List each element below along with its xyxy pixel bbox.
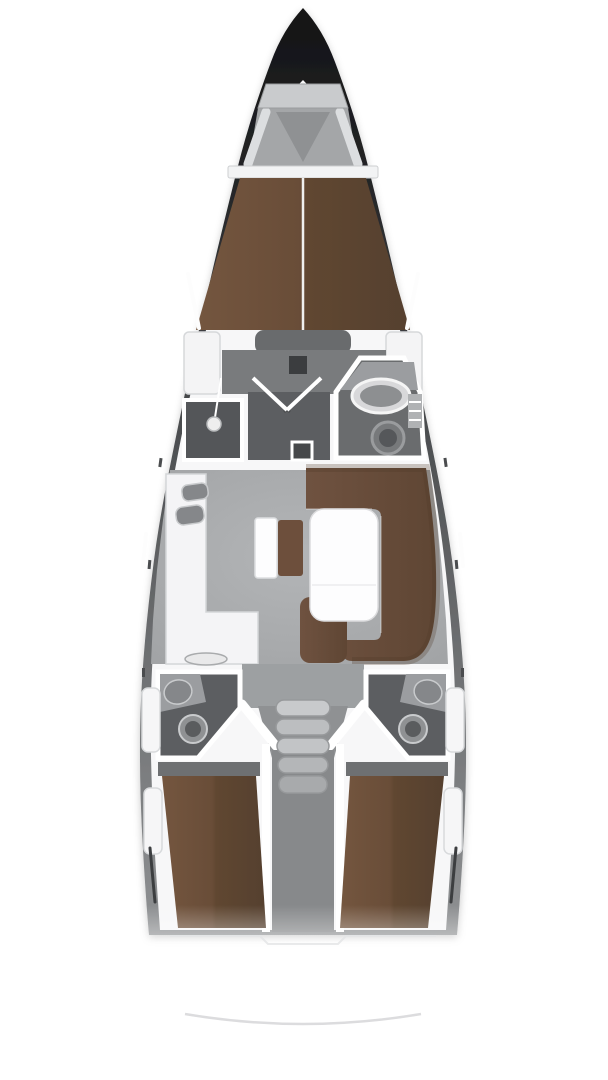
side-locker-port-1 <box>142 688 160 752</box>
mid-corridor <box>248 392 330 460</box>
hull-window-mid-port <box>143 534 146 566</box>
toilet-starboard-bowl <box>405 721 421 737</box>
floor-plan-canvas <box>0 0 608 1080</box>
head-compartment <box>336 358 424 458</box>
hull-window-mid-starboard <box>460 534 463 566</box>
stair-step-4 <box>278 757 328 773</box>
toilet-port-bowl <box>185 721 201 737</box>
nav-seat <box>278 520 303 576</box>
side-locker-starboard-2 <box>444 788 462 854</box>
chart-table <box>255 518 277 578</box>
stair-step-1 <box>276 700 330 716</box>
stanchion-tick <box>455 560 459 569</box>
stanchion-tick <box>461 668 464 677</box>
head-washbasin-bowl <box>360 385 402 407</box>
boat-floor-plan-diagram <box>0 0 608 1080</box>
stair-step-5 <box>279 776 327 793</box>
galley-stove <box>185 653 227 665</box>
anchor-locker <box>258 84 348 108</box>
side-locker-port-2 <box>144 788 162 854</box>
floor-hatch <box>292 442 312 460</box>
shower-head <box>207 417 221 431</box>
stanchion-tick <box>148 560 152 569</box>
galley-sink-2 <box>175 504 205 526</box>
salon <box>151 468 448 665</box>
stair-step-2 <box>276 719 330 735</box>
salon-table <box>310 509 378 621</box>
stern-section <box>110 905 500 1045</box>
side-locker-starboard-1 <box>446 688 464 752</box>
wardrobe-port <box>184 332 220 394</box>
stair-step-3 <box>277 738 329 754</box>
hull-window-forward-port <box>188 274 199 328</box>
hull-window-forward-starboard <box>407 274 418 328</box>
aft-cabin-starboard-shelf <box>346 762 448 776</box>
forward-bulkhead-beam <box>228 166 378 178</box>
companionway-stairs <box>276 700 330 793</box>
head-round-fixture-inner <box>379 429 397 447</box>
aft-cabin-port-shelf <box>158 762 260 776</box>
galley-sink-1 <box>181 482 209 501</box>
stanchion-tick <box>158 458 162 467</box>
stanchion-tick <box>142 668 145 677</box>
mast-step <box>289 356 307 374</box>
stanchion-tick <box>443 458 447 467</box>
